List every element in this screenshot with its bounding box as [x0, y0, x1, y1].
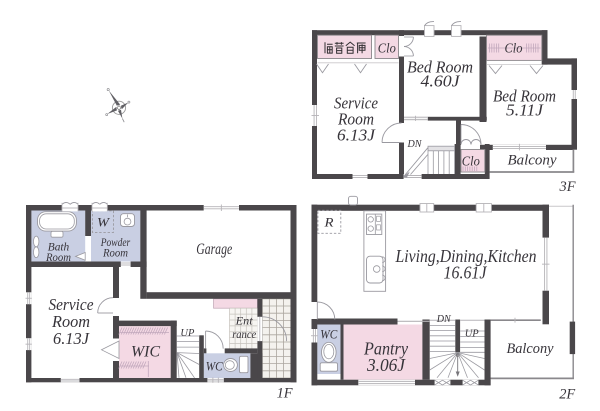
svg-text:6.13J: 6.13J — [337, 126, 376, 145]
svg-text:WIC: WIC — [131, 344, 160, 361]
svg-text:Room: Room — [45, 250, 71, 264]
svg-text:UP: UP — [180, 327, 194, 339]
svg-text:Ent: Ent — [235, 314, 254, 328]
svg-text:Balcony: Balcony — [508, 153, 557, 169]
svg-text:2F: 2F — [559, 387, 575, 403]
svg-text:3.06J: 3.06J — [366, 355, 406, 375]
svg-text:Garage: Garage — [196, 241, 232, 258]
svg-text:4.60J: 4.60J — [421, 72, 462, 91]
svg-text:WC: WC — [206, 360, 224, 374]
svg-text:Clo: Clo — [505, 42, 523, 57]
svg-text:UP: UP — [465, 328, 479, 340]
svg-text:16.61J: 16.61J — [444, 263, 488, 283]
svg-text:Clo: Clo — [378, 42, 396, 57]
svg-text:R: R — [323, 216, 334, 230]
svg-text:1F: 1F — [277, 386, 293, 402]
svg-text:3F: 3F — [559, 179, 576, 195]
svg-text:5.11J: 5.11J — [506, 101, 544, 120]
svg-text:W: W — [97, 215, 110, 230]
svg-text:Room: Room — [102, 246, 128, 260]
svg-text:rance: rance — [232, 327, 257, 341]
svg-text:Balcony: Balcony — [507, 341, 555, 357]
svg-text:WC: WC — [320, 328, 338, 342]
svg-text:DN: DN — [436, 313, 452, 325]
svg-text:DN: DN — [407, 138, 423, 150]
svg-text:6.13J: 6.13J — [53, 329, 90, 348]
